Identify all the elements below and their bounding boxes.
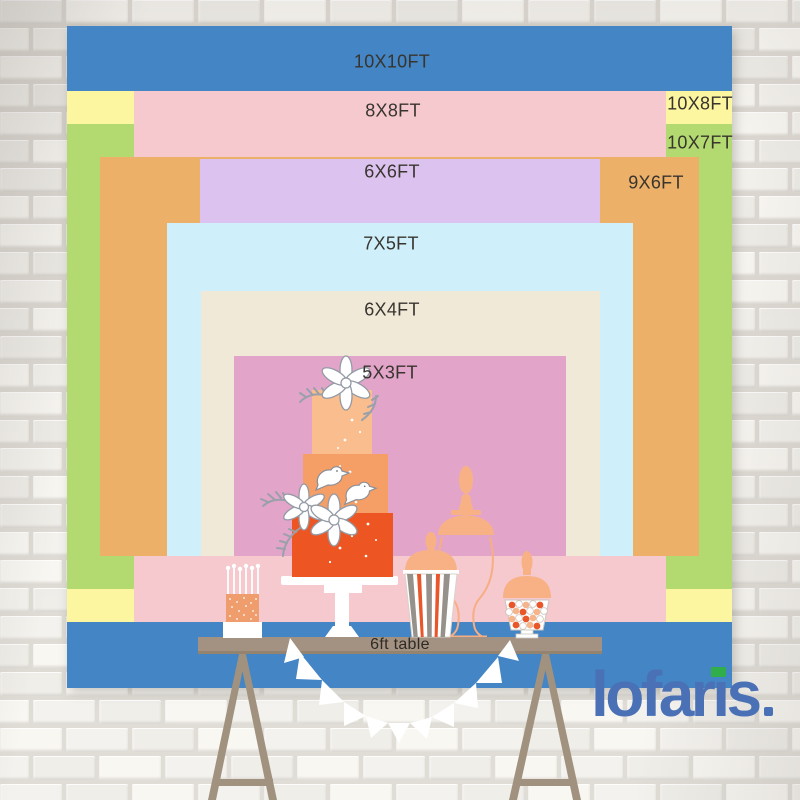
brick bbox=[726, 616, 788, 640]
brick bbox=[792, 280, 800, 304]
brick bbox=[759, 308, 800, 332]
brick bbox=[726, 784, 788, 800]
brick bbox=[726, 168, 788, 192]
brick bbox=[231, 700, 293, 724]
brick bbox=[0, 784, 62, 800]
brick bbox=[627, 756, 689, 780]
brick bbox=[726, 448, 788, 472]
brick bbox=[594, 728, 656, 752]
brick bbox=[198, 0, 260, 24]
brick bbox=[330, 784, 392, 800]
brick bbox=[792, 784, 800, 800]
brick bbox=[0, 168, 62, 192]
brick bbox=[759, 476, 800, 500]
size-label-10x10ft: 10X10FT bbox=[354, 52, 430, 73]
brick bbox=[0, 644, 29, 668]
brick bbox=[759, 588, 800, 612]
brick bbox=[660, 728, 722, 752]
logo-text-right: s bbox=[726, 658, 758, 730]
brick bbox=[0, 616, 62, 640]
brick bbox=[726, 392, 788, 416]
brick bbox=[66, 784, 128, 800]
brick bbox=[0, 588, 29, 612]
brick bbox=[198, 784, 260, 800]
brick bbox=[429, 700, 491, 724]
brick bbox=[792, 392, 800, 416]
brick bbox=[792, 504, 800, 528]
brick bbox=[792, 56, 800, 80]
brick bbox=[759, 140, 800, 164]
brick bbox=[132, 728, 194, 752]
brick bbox=[0, 252, 29, 276]
brick bbox=[99, 756, 161, 780]
brick bbox=[0, 364, 29, 388]
brick bbox=[396, 0, 458, 24]
brick bbox=[33, 700, 95, 724]
brick bbox=[726, 728, 788, 752]
brick bbox=[0, 756, 29, 780]
brick bbox=[0, 28, 29, 52]
brick bbox=[0, 532, 29, 556]
brick bbox=[759, 420, 800, 444]
brick bbox=[0, 224, 62, 248]
brick bbox=[363, 756, 425, 780]
brick bbox=[396, 784, 458, 800]
brick bbox=[726, 112, 788, 136]
brick bbox=[528, 728, 590, 752]
brick bbox=[594, 0, 656, 24]
brick bbox=[0, 560, 62, 584]
brick bbox=[0, 280, 62, 304]
brick bbox=[726, 0, 788, 24]
brick bbox=[231, 756, 293, 780]
brick bbox=[759, 756, 800, 780]
brick bbox=[297, 756, 359, 780]
brick bbox=[0, 308, 29, 332]
brick bbox=[330, 0, 392, 24]
brick bbox=[363, 700, 425, 724]
brick bbox=[792, 336, 800, 360]
brick bbox=[0, 504, 62, 528]
brick bbox=[528, 0, 590, 24]
brick bbox=[759, 364, 800, 388]
brick bbox=[0, 56, 62, 80]
brick bbox=[0, 84, 29, 108]
brick bbox=[792, 616, 800, 640]
lofaris-logo: lofarıs bbox=[591, 662, 773, 726]
brick bbox=[759, 196, 800, 220]
brick bbox=[0, 336, 62, 360]
brick bbox=[330, 728, 392, 752]
brick bbox=[264, 784, 326, 800]
table-size-label: 6ft table bbox=[370, 636, 430, 654]
brick bbox=[462, 784, 524, 800]
brick bbox=[132, 0, 194, 24]
logo-text-left: lofar bbox=[591, 658, 712, 730]
brick bbox=[726, 224, 788, 248]
size-label-10x7ft: 10X7FT bbox=[667, 133, 733, 154]
brick bbox=[0, 392, 62, 416]
size-label-7x5ft: 7X5FT bbox=[363, 234, 419, 255]
brick bbox=[0, 728, 62, 752]
brick bbox=[792, 168, 800, 192]
brick bbox=[264, 0, 326, 24]
brick bbox=[66, 728, 128, 752]
logo-period-icon bbox=[764, 707, 773, 716]
brick bbox=[726, 504, 788, 528]
brick bbox=[726, 56, 788, 80]
brick bbox=[0, 140, 29, 164]
brick bbox=[165, 700, 227, 724]
brick bbox=[726, 560, 788, 584]
brick bbox=[792, 112, 800, 136]
backdrop-size-chart: 10X10FT 8X8FT 10X8FT 10X7FT 6X6FT 9X6FT … bbox=[0, 0, 800, 800]
brick bbox=[561, 756, 623, 780]
brick bbox=[792, 448, 800, 472]
brick bbox=[759, 532, 800, 556]
brick bbox=[792, 672, 800, 696]
backdrop-rect-5x3ft bbox=[234, 356, 566, 556]
brick bbox=[66, 0, 128, 24]
brick bbox=[792, 0, 800, 24]
brick bbox=[759, 84, 800, 108]
brick bbox=[594, 784, 656, 800]
brick bbox=[0, 112, 62, 136]
size-label-9x6ft: 9X6FT bbox=[628, 173, 684, 194]
size-label-10x8ft: 10X8FT bbox=[667, 94, 733, 115]
brick bbox=[792, 560, 800, 584]
brick bbox=[165, 756, 227, 780]
brick bbox=[0, 420, 29, 444]
brick bbox=[99, 700, 161, 724]
brick bbox=[726, 336, 788, 360]
brick bbox=[0, 476, 29, 500]
brick bbox=[726, 280, 788, 304]
size-label-6x4ft: 6X4FT bbox=[364, 300, 420, 321]
brick bbox=[33, 756, 95, 780]
brick bbox=[0, 0, 62, 24]
brick bbox=[792, 728, 800, 752]
brick bbox=[462, 728, 524, 752]
logo-green-dot-icon bbox=[711, 667, 726, 677]
brick bbox=[264, 728, 326, 752]
brick bbox=[0, 448, 62, 472]
logo-letter-i: ı bbox=[712, 662, 726, 726]
brick bbox=[759, 28, 800, 52]
brick bbox=[495, 756, 557, 780]
brick bbox=[198, 728, 260, 752]
brick bbox=[132, 784, 194, 800]
brick bbox=[759, 252, 800, 276]
brick bbox=[528, 784, 590, 800]
brick bbox=[297, 700, 359, 724]
size-label-8x8ft: 8X8FT bbox=[365, 101, 421, 122]
brick bbox=[693, 756, 755, 780]
brick bbox=[0, 196, 29, 220]
brick bbox=[396, 728, 458, 752]
brick bbox=[660, 0, 722, 24]
brick bbox=[660, 784, 722, 800]
brick bbox=[792, 224, 800, 248]
size-label-5x3ft: 5X3FT bbox=[362, 363, 418, 384]
brick bbox=[462, 0, 524, 24]
brick bbox=[495, 700, 557, 724]
size-label-6x6ft: 6X6FT bbox=[364, 162, 420, 183]
brick bbox=[429, 756, 491, 780]
brick bbox=[0, 700, 29, 724]
brick bbox=[0, 672, 62, 696]
